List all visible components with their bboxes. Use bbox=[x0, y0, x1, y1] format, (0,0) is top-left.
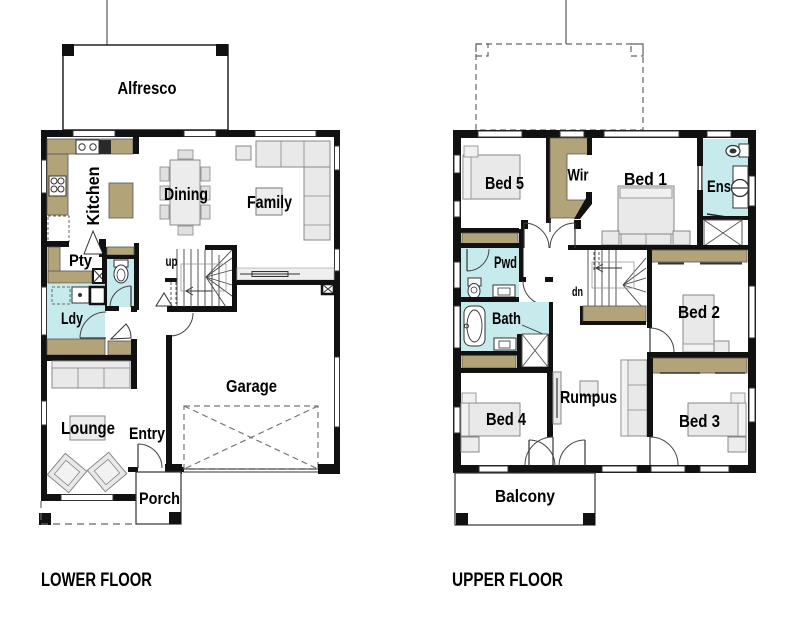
svg-text:Pty: Pty bbox=[69, 252, 93, 270]
svg-text:Ens: Ens bbox=[707, 178, 731, 196]
svg-text:Lounge: Lounge bbox=[61, 418, 115, 438]
svg-text:Balcony: Balcony bbox=[495, 486, 555, 506]
svg-text:Bed 5: Bed 5 bbox=[485, 173, 524, 193]
svg-text:Bath: Bath bbox=[492, 310, 521, 328]
svg-text:Bed 1: Bed 1 bbox=[624, 169, 667, 189]
svg-text:LOWER FLOOR: LOWER FLOOR bbox=[41, 570, 152, 591]
svg-text:Alfresco: Alfresco bbox=[118, 78, 177, 98]
svg-text:Kitchen: Kitchen bbox=[83, 167, 103, 226]
svg-text:Dining: Dining bbox=[164, 184, 208, 204]
svg-text:Garage: Garage bbox=[226, 376, 277, 396]
svg-text:Wir: Wir bbox=[568, 167, 589, 185]
svg-text:Ldy: Ldy bbox=[61, 310, 84, 328]
svg-text:Family: Family bbox=[247, 192, 292, 212]
svg-text:Bed 2: Bed 2 bbox=[678, 302, 720, 322]
svg-text:UPPER FLOOR: UPPER FLOOR bbox=[452, 570, 563, 591]
svg-text:Entry: Entry bbox=[129, 425, 166, 443]
svg-text:Pwd: Pwd bbox=[494, 254, 517, 272]
svg-text:Porch: Porch bbox=[139, 490, 180, 508]
svg-text:up: up bbox=[166, 253, 178, 269]
svg-text:Rumpus: Rumpus bbox=[560, 387, 617, 407]
svg-text:dn: dn bbox=[572, 285, 583, 299]
svg-text:Bed 3: Bed 3 bbox=[679, 411, 720, 431]
svg-text:Bed 4: Bed 4 bbox=[486, 409, 526, 429]
